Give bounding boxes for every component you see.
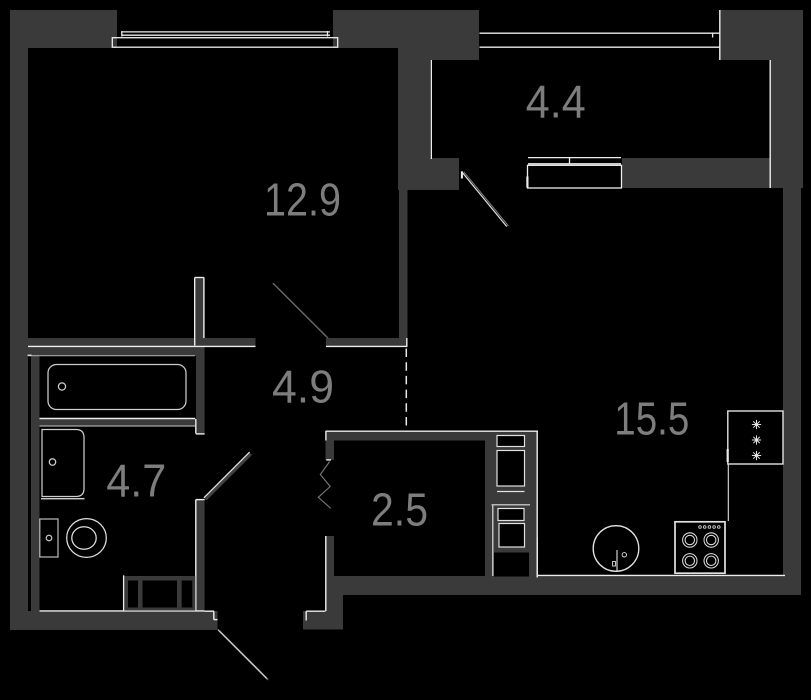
svg-text:15.5: 15.5 (614, 392, 689, 444)
svg-text:2.5: 2.5 (371, 483, 428, 535)
svg-text:12.9: 12.9 (264, 174, 341, 226)
svg-text:4.9: 4.9 (272, 360, 334, 412)
svg-text:4.4: 4.4 (526, 75, 586, 127)
svg-text:4.7: 4.7 (106, 454, 166, 506)
